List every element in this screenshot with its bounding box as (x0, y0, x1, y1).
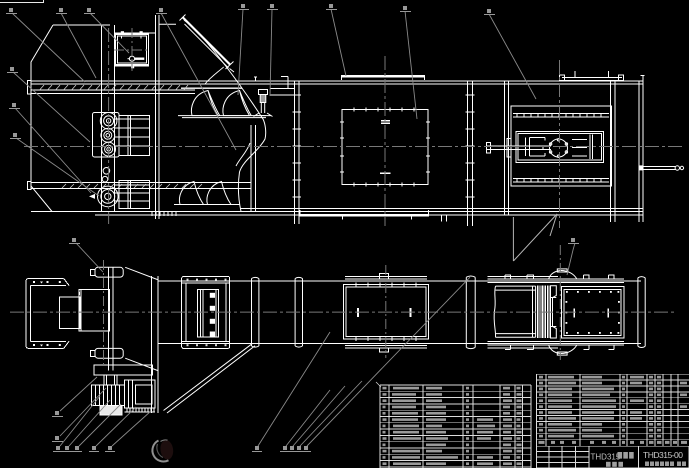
svg-text:THD315-00: THD315-00 (643, 450, 683, 460)
svg-text:THD315: THD315 (591, 453, 621, 462)
